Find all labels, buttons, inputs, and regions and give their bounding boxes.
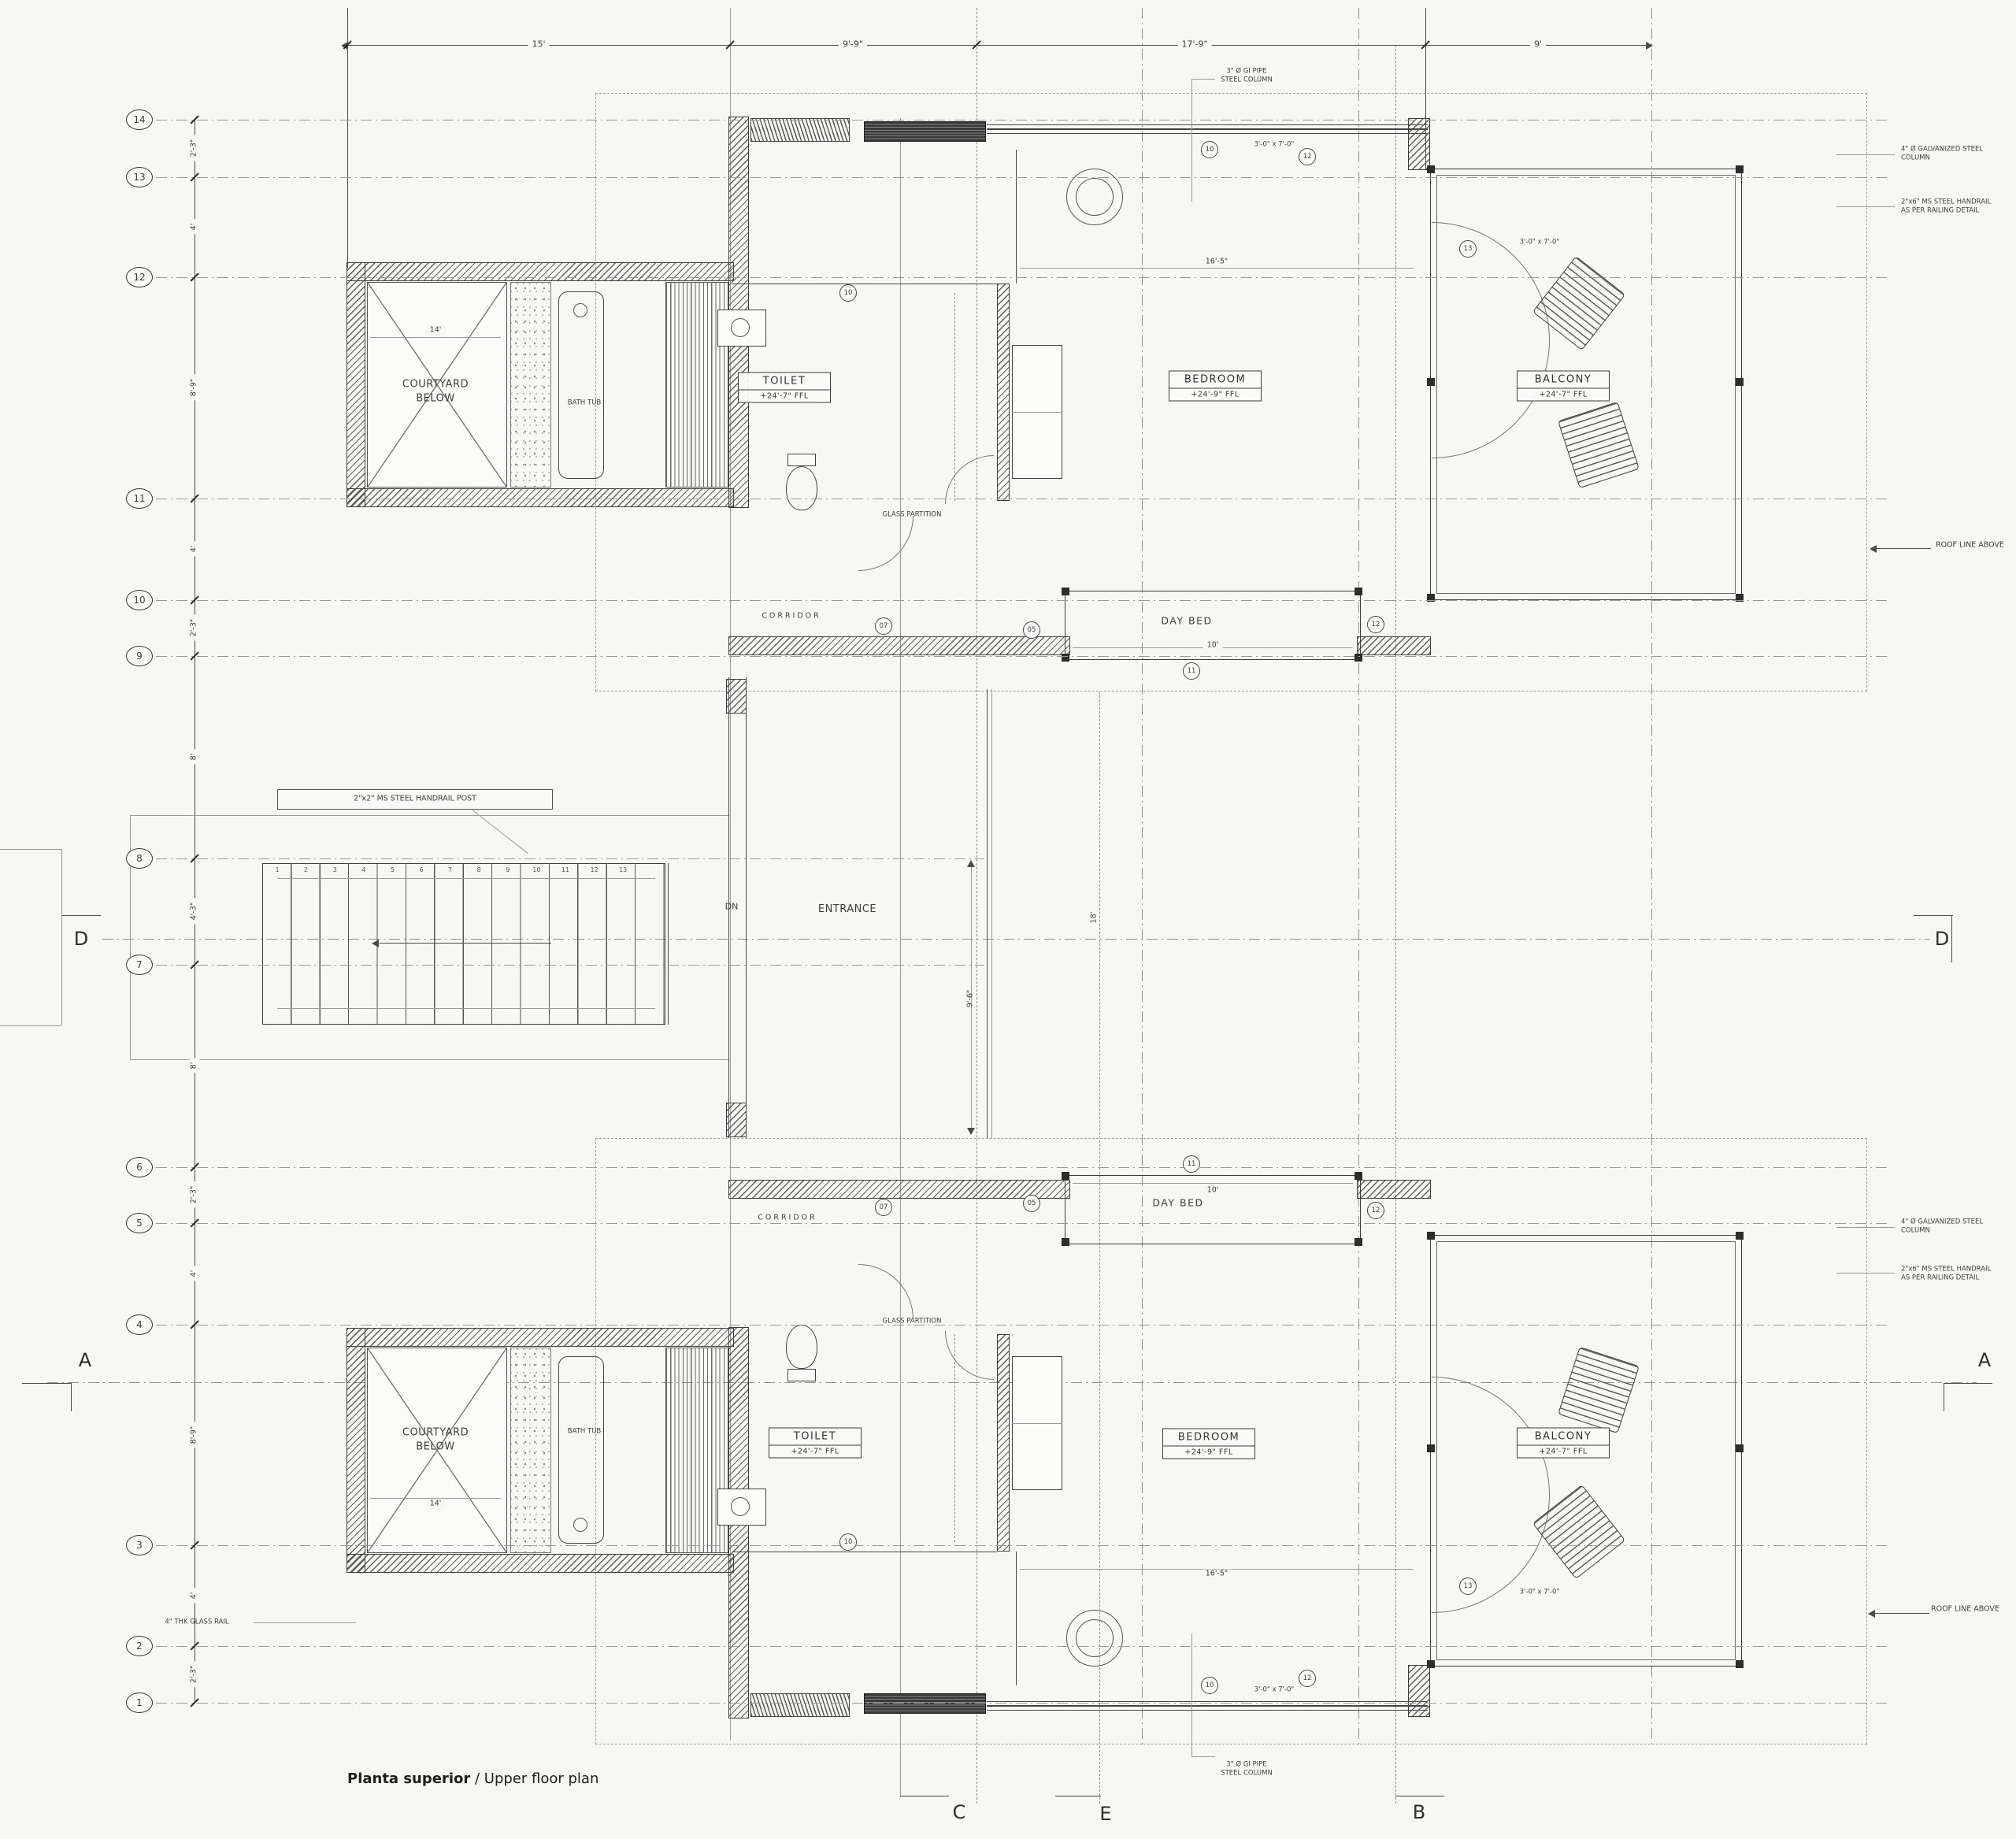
- wall: [346, 1554, 734, 1573]
- reference-bubble: 05: [1023, 1195, 1040, 1212]
- plan-label: DN: [725, 902, 739, 914]
- room-name: BEDROOM: [1163, 1429, 1254, 1447]
- stair-direction-arrow: [372, 940, 379, 947]
- grid-line: [156, 1703, 1890, 1704]
- section-marker-a: A: [1978, 1349, 1991, 1371]
- bath-tub: [558, 1356, 604, 1544]
- wardrobe-shelf: [1012, 1423, 1062, 1424]
- grid-bubble: 5: [126, 1213, 153, 1233]
- plan-label: DAY BED: [1161, 615, 1212, 628]
- room-name: BEDROOM: [1169, 372, 1261, 389]
- grid-line: [156, 120, 1890, 120]
- grid-line: [156, 1545, 1890, 1546]
- room-label-box: TOILET+24'-7" FFL: [769, 1428, 862, 1459]
- section-bracket: [61, 915, 101, 916]
- grid-bubble: 2: [126, 1636, 153, 1656]
- drawing-title-spanish: Planta superior: [347, 1770, 470, 1787]
- steel-column: [1062, 1172, 1069, 1180]
- toilet-fixture: [786, 466, 817, 510]
- section-bracket: [1951, 915, 1952, 962]
- entrance-wall: [746, 677, 747, 1138]
- dim-label: 15': [528, 39, 549, 51]
- room-label-box: BALCONY+24'-7" FFL: [1517, 371, 1610, 402]
- tread-number: 10: [532, 866, 540, 873]
- section-bracket: [1395, 1796, 1444, 1796]
- round-table-inner: [1076, 178, 1114, 216]
- room-ffl: +24'-7" FFL: [1518, 389, 1609, 401]
- grid-line: [156, 1167, 1890, 1168]
- steel-column: [1736, 378, 1744, 386]
- entrance-wall: [987, 689, 988, 1138]
- plan-label: 3" Ø GI PIPE STEEL COLUMN: [1221, 68, 1273, 86]
- room-name: TOILET: [739, 373, 830, 391]
- room-label-box: TOILET+24'-7" FFL: [738, 373, 831, 403]
- tread-number: 13: [619, 866, 627, 873]
- plan-label: 10': [1203, 641, 1223, 651]
- plan-label: 3'-0" x 7'-0": [1520, 1588, 1560, 1596]
- dim-label: 8': [190, 1059, 200, 1073]
- grid-bubble: 9: [126, 646, 153, 666]
- reference-bubble: 11: [1183, 1155, 1200, 1173]
- planter-strip: [510, 282, 551, 488]
- dim-label: 8': [190, 750, 200, 765]
- plan-label: 4" Ø GALVANIZED STEEL COLUMN: [1901, 146, 1983, 164]
- section-marker-c: C: [953, 1801, 966, 1823]
- arrowhead: [967, 860, 975, 867]
- stair-walk-line: [380, 943, 551, 944]
- plan-label: 3'-0" x 7'-0": [1254, 1685, 1295, 1694]
- dim-label: 4': [190, 1589, 200, 1604]
- section-marker-d: D: [74, 928, 88, 950]
- grid-bubble: 13: [126, 167, 153, 187]
- arrowhead: [1868, 1610, 1875, 1618]
- wall: [997, 1334, 1010, 1552]
- room-ffl: +24'-9" FFL: [1169, 389, 1261, 401]
- wall: [346, 1328, 365, 1573]
- plan-label: GLASS PARTITION: [883, 1317, 942, 1325]
- window-band: [987, 124, 1428, 134]
- tread-number: 9: [506, 866, 510, 873]
- grid-line: [156, 656, 1890, 657]
- plan-label: BATH TUB: [568, 399, 602, 407]
- reference-bubble: 10: [1201, 1677, 1218, 1694]
- wall: [728, 1180, 1070, 1199]
- stair-handrail: [277, 1008, 655, 1009]
- plan-label: 4" THK GLASS RAIL: [165, 1618, 228, 1626]
- plan-label: 2"x6" MS STEEL HANDRAIL AS PER RAILING D…: [1901, 1266, 1991, 1284]
- plan-label: 14': [426, 1500, 446, 1510]
- plan-label: 14': [426, 326, 446, 336]
- leader-line: [1191, 79, 1215, 80]
- plan-label: ENTRANCE: [818, 903, 876, 917]
- stair-landing-line: [668, 863, 669, 1025]
- dimension-line: [1020, 268, 1414, 269]
- section-bracket: [1944, 1383, 1992, 1384]
- wall: [346, 488, 734, 507]
- tread-number: 1: [275, 866, 279, 873]
- room-ffl: +24'-7" FFL: [769, 1446, 861, 1458]
- tread-number: 7: [448, 866, 452, 873]
- boundary-line: [61, 849, 62, 1025]
- steel-column: [1062, 588, 1069, 595]
- section-bracket: [1914, 915, 1953, 916]
- planter-strip: [510, 1348, 551, 1553]
- wall: [997, 284, 1010, 501]
- steel-column: [1427, 1232, 1435, 1240]
- tread-number: 2: [304, 866, 308, 873]
- grid-bubble: 8: [126, 848, 153, 869]
- steel-column: [1736, 165, 1744, 173]
- leader-line: [1191, 1756, 1215, 1757]
- grid-bubble: 6: [126, 1157, 153, 1177]
- day-bed-inner-line: [1073, 1183, 1353, 1184]
- wall: [728, 636, 1070, 655]
- room-name: TOILET: [769, 1429, 861, 1446]
- grid-bubble: 3: [126, 1535, 153, 1555]
- leader-line: [1836, 1273, 1895, 1274]
- round-table-inner: [1076, 1619, 1114, 1657]
- wall: [346, 262, 734, 281]
- section-bracket: [1055, 1796, 1101, 1796]
- dim-label: 9': [1530, 39, 1546, 51]
- wall: [1357, 636, 1431, 655]
- grid-line: [156, 1325, 1890, 1325]
- dimension-line: [370, 337, 501, 338]
- plan-label: ROOF LINE ABOVE: [1931, 1605, 1999, 1615]
- boundary-line: [0, 1025, 61, 1026]
- room-ffl: +24'-7" FFL: [1518, 1446, 1609, 1458]
- boundary-line: [130, 1059, 728, 1060]
- tread-number: 4: [361, 866, 365, 873]
- reference-bubble: 07: [875, 1199, 892, 1216]
- grid-line: [156, 858, 984, 859]
- room-ffl: +24'-7" FFL: [739, 391, 830, 402]
- arrowhead: [967, 1128, 975, 1135]
- tread-number: 8: [477, 866, 481, 873]
- tread-number: 6: [419, 866, 423, 873]
- plan-label: CORRIDOR: [762, 612, 821, 622]
- grid-bubble: 7: [126, 955, 153, 975]
- reference-bubble: 11: [1183, 662, 1200, 680]
- floor-plan-canvas: Planta superior / Upper floor plan 14131…: [0, 0, 2016, 1839]
- toilet-cistern: [787, 454, 816, 466]
- bath-tub: [558, 291, 604, 479]
- plan-label: GLASS PARTITION: [883, 510, 942, 519]
- staircase: [262, 863, 665, 1025]
- wall: [1357, 1180, 1431, 1199]
- grid-bubble: 4: [126, 1314, 153, 1335]
- room-name: BALCONY: [1518, 1429, 1609, 1446]
- steel-column: [1354, 1172, 1362, 1180]
- plan-label: 10': [1203, 1186, 1223, 1196]
- basin-bowl: [731, 318, 750, 337]
- steel-column: [1062, 654, 1069, 662]
- leader-line: [1836, 206, 1895, 207]
- plan-label: 2"x2" MS STEEL HANDRAIL POST: [354, 795, 476, 805]
- insulated-wall: [750, 118, 850, 142]
- wall-line: [732, 284, 997, 284]
- section-marker-a: A: [79, 1349, 91, 1371]
- leader-line: [472, 810, 528, 854]
- grid-bubble: 11: [126, 488, 153, 509]
- basin-bowl: [731, 1497, 750, 1516]
- room-label-box: BEDROOM+24'-9" FFL: [1162, 1429, 1255, 1459]
- roof-line-arrow: [1874, 1613, 1929, 1614]
- roof-line-arrow: [1876, 548, 1931, 549]
- section-marker-d: D: [1935, 928, 1949, 950]
- arrowhead: [1646, 42, 1653, 50]
- wall-line: [1016, 1552, 1017, 1685]
- grid-line: [156, 1223, 1890, 1224]
- dim-label: 4': [190, 1266, 200, 1281]
- reference-bubble: 07: [875, 617, 892, 635]
- grid-bubble: 10: [126, 590, 153, 610]
- wall: [346, 1328, 734, 1347]
- wall-line: [732, 1552, 997, 1552]
- tub-faucet: [573, 1518, 587, 1532]
- grid-bubble: 1: [126, 1693, 153, 1713]
- glass-partition: [954, 293, 955, 501]
- leader-line: [254, 1622, 356, 1623]
- leader-line: [1836, 1227, 1895, 1228]
- wall: [726, 1103, 747, 1137]
- grid-bubble: 14: [126, 109, 153, 130]
- steel-column: [1736, 1232, 1744, 1240]
- section-bracket: [71, 1383, 72, 1411]
- reference-bubble: 10: [1201, 141, 1218, 158]
- plan-label: BATH TUB: [568, 1427, 602, 1436]
- dim-label: 4'-3": [190, 899, 200, 925]
- wall: [1408, 118, 1430, 170]
- wall: [1408, 1665, 1430, 1717]
- room-label-box: BEDROOM+24'-9" FFL: [1169, 371, 1262, 402]
- section-bracket: [1944, 1383, 1944, 1411]
- tread-number: 3: [333, 866, 337, 873]
- dim-label: 4': [190, 542, 200, 557]
- plan-label: 18': [1090, 912, 1100, 924]
- entrance-wall: [991, 689, 992, 1138]
- wall-line: [1016, 150, 1017, 284]
- plan-label: 16'-5": [1202, 258, 1232, 268]
- plan-label: 16'-5": [1202, 1570, 1232, 1580]
- dim-label: 17'-9": [1177, 39, 1211, 51]
- steel-column: [1427, 165, 1435, 173]
- steel-column: [1736, 1444, 1744, 1452]
- reference-bubble: 05: [1023, 621, 1040, 639]
- section-bracket: [900, 1796, 949, 1796]
- reference-bubble: 12: [1367, 616, 1384, 633]
- grid-bubble: 12: [126, 267, 153, 287]
- dim-label: 2'-3": [190, 1662, 200, 1688]
- plan-label: 3'-0" x 7'-0": [1254, 140, 1295, 149]
- glass-partition: [954, 1334, 955, 1542]
- leader-line: [1191, 79, 1192, 202]
- dim-label: 8'-9": [190, 1422, 200, 1448]
- dim-label: 2'-3": [190, 1182, 200, 1208]
- grid-line: [156, 1646, 1890, 1647]
- plan-label: CORRIDOR: [758, 1214, 817, 1224]
- stair-handrail: [277, 878, 655, 879]
- wardrobe-shelf: [1012, 412, 1062, 413]
- reference-bubble: 10: [839, 1533, 857, 1551]
- room-ffl: +24'-9" FFL: [1163, 1447, 1254, 1459]
- dim-label: 9'-9": [839, 39, 867, 51]
- reference-bubble: 12: [1299, 1670, 1316, 1687]
- tub-faucet: [573, 303, 587, 317]
- tread-number: 5: [391, 866, 395, 873]
- steel-column: [1354, 588, 1362, 595]
- grid-line: [156, 177, 1890, 178]
- tread-number: 12: [591, 866, 598, 873]
- reference-bubble: 12: [1299, 148, 1316, 165]
- dim-label: 8'-9": [190, 375, 200, 401]
- room-label-box: BALCONY+24'-7" FFL: [1517, 1428, 1610, 1459]
- dim-label: 4': [190, 220, 200, 235]
- dim-label: 2'-3": [190, 615, 200, 641]
- steel-column: [1427, 1660, 1435, 1668]
- plan-label: 4" Ø GALVANIZED STEEL COLUMN: [1901, 1218, 1983, 1237]
- plan-label: 3'-0" x 7'-0": [1520, 238, 1560, 247]
- grid-line: [156, 965, 984, 966]
- plan-label: DAY BED: [1152, 1197, 1203, 1211]
- steel-column: [1736, 1660, 1744, 1668]
- tread-number: 11: [561, 866, 569, 873]
- arrowhead: [1870, 545, 1877, 553]
- reference-bubble: 13: [1459, 1578, 1477, 1595]
- plan-label: 3" Ø GI PIPE STEEL COLUMN: [1221, 1761, 1273, 1779]
- grid-line: [156, 600, 1890, 601]
- boundary-line: [130, 815, 728, 816]
- room-name: BALCONY: [1518, 372, 1609, 389]
- drawing-title: Planta superior / Upper floor plan: [347, 1770, 598, 1787]
- plan-label: COURTYARD BELOW: [402, 1426, 469, 1453]
- plan-label: ROOF LINE ABOVE: [1936, 541, 2004, 551]
- leader-line: [1836, 154, 1895, 155]
- drawing-title-english: / Upper floor plan: [470, 1770, 598, 1787]
- grid-line: [156, 499, 1890, 499]
- toilet-cistern: [787, 1369, 816, 1381]
- steel-column: [1354, 654, 1362, 662]
- louver-panel: [864, 121, 986, 142]
- wall: [346, 262, 365, 507]
- plan-label: COURTYARD BELOW: [402, 377, 469, 405]
- leader-line: [1191, 1633, 1192, 1756]
- section-marker-e: E: [1099, 1803, 1111, 1825]
- steel-column: [1354, 1238, 1362, 1246]
- section-marker-b: B: [1413, 1801, 1425, 1823]
- reference-bubble: 12: [1367, 1202, 1384, 1219]
- toilet-fixture: [786, 1325, 817, 1369]
- wall: [726, 679, 747, 714]
- grid-line: [156, 277, 1890, 278]
- reference-bubble: 10: [839, 284, 857, 302]
- insulated-wall: [750, 1693, 850, 1717]
- plan-label: 2"x6" MS STEEL HANDRAIL AS PER RAILING D…: [1901, 198, 1991, 217]
- section-bracket: [22, 1383, 71, 1384]
- dim-label: 2'-3": [190, 135, 200, 161]
- boundary-line: [0, 849, 61, 850]
- steel-column: [1062, 1238, 1069, 1246]
- reference-bubble: 13: [1459, 240, 1477, 258]
- plan-label: 9'-6": [966, 990, 976, 1008]
